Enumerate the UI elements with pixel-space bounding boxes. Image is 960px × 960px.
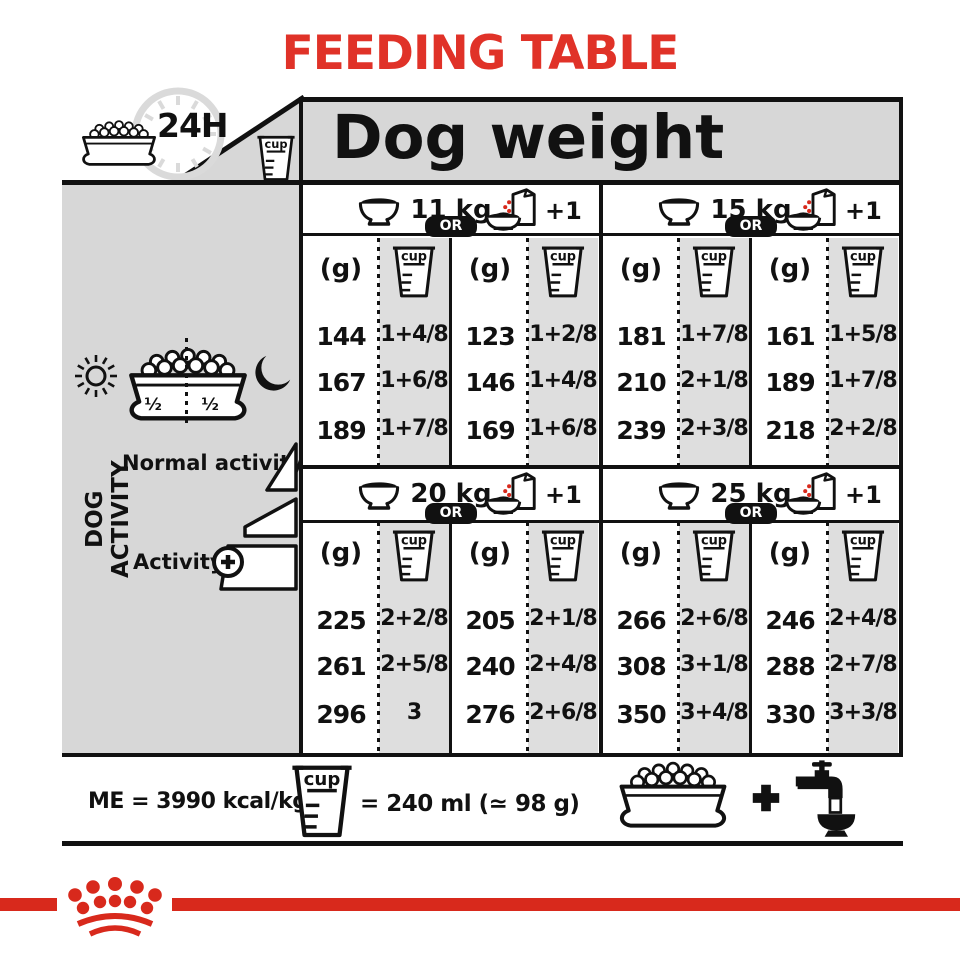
dry-plus-pouch-cell: (g) 123 146 169 1+2/8 1+4/8 1+6/8 (452, 238, 598, 465)
dry-bowl-icon (356, 480, 402, 513)
measuring-cup-icon (289, 761, 355, 839)
weight-section-header: 25 kg OR +1 (603, 469, 898, 519)
grams-unit-label: (g) (303, 538, 379, 568)
border-right (899, 97, 903, 757)
water-tap-icon (785, 756, 857, 842)
wet-pouch-bowl-icon (783, 471, 841, 517)
sun-icon (72, 352, 120, 400)
grams-value: 225 (303, 606, 379, 635)
grams-value: 146 (452, 368, 528, 397)
border-quadrant-divider (599, 185, 603, 753)
dry-only-cell: (g) 181 210 239 1+7/8 2+1/8 2+3/8 (603, 238, 749, 465)
grams-unit-label: (g) (452, 254, 528, 284)
plus-one-pouch-label: +1 (545, 481, 582, 509)
dry-bowl-icon (656, 480, 702, 513)
plus-one-pouch-label: +1 (845, 197, 882, 225)
cup-equivalence-label: = 240 ml (≃ 98 g) (360, 791, 579, 817)
grams-value: 350 (603, 700, 679, 729)
kibble-bowl-icon (597, 760, 749, 838)
ration-data: (g) 144 167 189 1+4/8 1+6/8 1+7/8 (g) 12… (303, 238, 598, 465)
measuring-cup-icon (841, 243, 885, 299)
grams-value: 296 (303, 700, 379, 729)
border-under-header (62, 180, 903, 185)
dry-plus-pouch-cell: (g) 161 189 218 1+5/8 1+7/8 2+2/8 (752, 238, 898, 465)
cups-value: 1+4/8 (379, 322, 449, 347)
grams-value: 189 (752, 368, 828, 397)
measuring-cup-icon (541, 527, 585, 583)
moon-icon (252, 352, 294, 394)
cups-value: 1+7/8 (379, 416, 449, 441)
cups-value: 1+7/8 (828, 368, 898, 393)
grams-value: 210 (603, 368, 679, 397)
brand-line-left (0, 898, 57, 911)
border-sidebar-divider (299, 97, 303, 757)
half-portion-left: ½ (140, 395, 166, 415)
grams-value: 308 (603, 652, 679, 681)
dry-only-cell: (g) 266 308 350 2+6/8 3+1/8 3+4/8 (603, 522, 749, 753)
weight-section-header: 11 kg OR +1 (303, 185, 598, 235)
measuring-cup-icon (692, 527, 736, 583)
footer-bar-bottom (62, 841, 903, 846)
grams-value: 240 (452, 652, 528, 681)
dry-bowl-icon (656, 196, 702, 229)
grams-value: 123 (452, 322, 528, 351)
or-badge: OR (425, 216, 477, 237)
cups-value: 2+6/8 (679, 606, 749, 631)
grams-unit-label: (g) (752, 538, 828, 568)
grams-unit-label: (g) (752, 254, 828, 284)
grams-value: 144 (303, 322, 379, 351)
cups-value: 2+1/8 (528, 606, 598, 631)
dry-only-cell: (g) 225 261 296 2+2/8 2+5/8 3 (303, 522, 449, 753)
grams-value: 330 (752, 700, 828, 729)
kibble-bowl-icon (76, 112, 162, 180)
grams-value: 276 (452, 700, 528, 729)
or-badge: OR (725, 216, 777, 237)
border-bottom (62, 753, 903, 757)
activity-wedge-icon (200, 430, 300, 595)
grams-value: 239 (603, 416, 679, 445)
or-badge-label: OR (740, 505, 763, 521)
border-top (300, 97, 903, 102)
measuring-cup-icon (841, 527, 885, 583)
measuring-cup-icon (392, 527, 436, 583)
dry-plus-pouch-cell: (g) 205 240 276 2+1/8 2+4/8 2+6/8 (452, 522, 598, 753)
grams-value: 261 (303, 652, 379, 681)
cups-value: 3 (379, 700, 449, 725)
or-badge: OR (425, 503, 477, 524)
grams-unit-label: (g) (603, 538, 679, 568)
cups-value: 1+4/8 (528, 368, 598, 393)
grams-unit-label: (g) (603, 254, 679, 284)
or-badge: OR (725, 503, 777, 524)
cups-value: 1+7/8 (679, 322, 749, 347)
dry-bowl-icon (356, 196, 402, 229)
cups-value: 3+3/8 (828, 700, 898, 725)
half-portion-right: ½ (197, 395, 223, 415)
daily-ration-24h-label: 24H (157, 106, 228, 145)
cups-value: 2+1/8 (679, 368, 749, 393)
weight-section-header: 20 kg OR +1 (303, 469, 598, 519)
grams-value: 189 (303, 416, 379, 445)
or-badge-label: OR (740, 218, 763, 234)
cups-value: 1+6/8 (528, 416, 598, 441)
grams-value: 288 (752, 652, 828, 681)
half-half-bowl-icon (118, 346, 258, 432)
grams-unit-label: (g) (303, 254, 379, 284)
weight-section-header: 15 kg OR +1 (603, 185, 898, 235)
or-badge-label: OR (440, 218, 463, 234)
grams-value: 218 (752, 416, 828, 445)
dry-plus-pouch-cell: (g) 246 288 330 2+4/8 2+7/8 3+3/8 (752, 522, 898, 753)
or-badge-label: OR (440, 505, 463, 521)
grams-value: 205 (452, 606, 528, 635)
page-title: FEEDING TABLE (0, 26, 960, 81)
measuring-cup-icon (392, 243, 436, 299)
wet-pouch-bowl-icon (483, 471, 541, 517)
ration-data: (g) 225 261 296 2+2/8 2+5/8 3 (g) 205 24… (303, 522, 598, 753)
grams-value: 181 (603, 322, 679, 351)
grams-value: 246 (752, 606, 828, 635)
cups-value: 3+4/8 (679, 700, 749, 725)
dog-weight-header: Dog weight (332, 102, 724, 173)
wet-pouch-bowl-icon (783, 187, 841, 233)
measuring-cup-icon (256, 133, 296, 182)
cups-value: 3+1/8 (679, 652, 749, 677)
cups-value: 2+5/8 (379, 652, 449, 677)
feeding-table-infographic: FEEDING TABLE 24H Dog weight ½ ½ DOG ACT… (0, 0, 960, 960)
ration-data: (g) 266 308 350 2+6/8 3+1/8 3+4/8 (g) 24… (603, 522, 898, 753)
plus-icon (751, 782, 781, 814)
grams-value: 161 (752, 322, 828, 351)
cups-value: 2+6/8 (528, 700, 598, 725)
cups-value: 2+4/8 (828, 606, 898, 631)
grams-value: 266 (603, 606, 679, 635)
plus-one-pouch-label: +1 (545, 197, 582, 225)
cups-value: 2+2/8 (379, 606, 449, 631)
cups-value: 1+2/8 (528, 322, 598, 347)
measuring-cup-icon (541, 243, 585, 299)
brand-line-right (172, 898, 960, 911)
grams-value: 167 (303, 368, 379, 397)
cups-value: 2+3/8 (679, 416, 749, 441)
cups-value: 2+7/8 (828, 652, 898, 677)
dry-only-cell: (g) 144 167 189 1+4/8 1+6/8 1+7/8 (303, 238, 449, 465)
wet-pouch-bowl-icon (483, 187, 541, 233)
plus-one-pouch-label: +1 (845, 481, 882, 509)
cups-value: 1+5/8 (828, 322, 898, 347)
royal-canin-crown-logo (57, 866, 175, 944)
cups-value: 1+6/8 (379, 368, 449, 393)
cups-value: 2+2/8 (828, 416, 898, 441)
cups-value: 2+4/8 (528, 652, 598, 677)
ration-data: (g) 181 210 239 1+7/8 2+1/8 2+3/8 (g) 16… (603, 238, 898, 465)
metabolizable-energy-label: ME = 3990 kcal/kg (88, 789, 286, 814)
grams-unit-label: (g) (452, 538, 528, 568)
grams-value: 169 (452, 416, 528, 445)
dog-activity-axis-label: DOG ACTIVITY (82, 436, 114, 602)
measuring-cup-icon (692, 243, 736, 299)
bowl-split-dotted-line (185, 338, 188, 426)
